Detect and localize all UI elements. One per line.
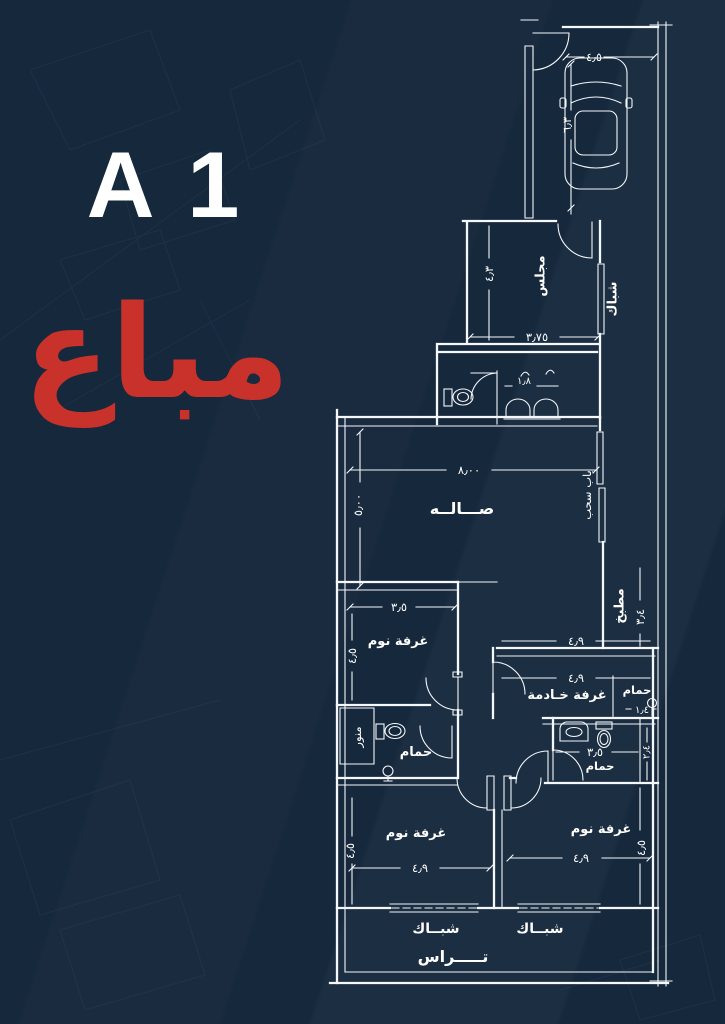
toilet-bowl-inner xyxy=(458,393,469,402)
toilet-bowl xyxy=(453,389,473,405)
dim-bath-height: ٢٫٤ xyxy=(642,745,653,759)
vanity-basin xyxy=(566,728,582,737)
sink-basin xyxy=(383,766,393,776)
car-body xyxy=(565,58,627,189)
dim-maid-width: ٤٫٩ xyxy=(568,671,584,685)
bedroom1-label: غرفة نوم xyxy=(368,634,428,649)
mid-bathroom-door-arc xyxy=(553,750,583,780)
vanity-outline xyxy=(560,722,588,741)
hall-label: صـــالــه xyxy=(430,499,495,518)
bedroom3-door-arc xyxy=(516,751,548,783)
dim-majlis-height: ٤٫٣ xyxy=(482,266,496,282)
bedroom1-door-arc xyxy=(426,672,462,715)
dim-kitchen-depth: ٣٫٤ xyxy=(633,609,647,625)
toilet-bowl-inner xyxy=(600,734,608,745)
dim-bedroom3-height: ٤٫٥ xyxy=(634,840,648,856)
sink-counter xyxy=(504,386,560,419)
left-bathroom-label: حمام xyxy=(400,745,433,760)
sliding-door-leaves xyxy=(597,432,605,542)
toilet-tank xyxy=(596,722,612,729)
left-bathroom-toilet-icon xyxy=(376,724,405,740)
car-hood-line xyxy=(571,82,621,86)
double-sink-icon xyxy=(504,370,560,419)
dim-majlis-width: ٣٫٧٥ xyxy=(526,330,548,344)
parking-left-wall xyxy=(525,46,533,218)
maid-room-label: غرفة خـادمة xyxy=(527,688,606,703)
toilet-bowl-inner xyxy=(389,727,401,736)
corridor-arch-arcs xyxy=(457,778,541,808)
light-well-label: منور xyxy=(350,726,365,748)
terrace-label: تـــــراس xyxy=(418,947,489,966)
dim-bedroom3-width: ٤٫٩ xyxy=(573,851,589,865)
toilet-tank xyxy=(444,389,452,406)
labels-layer: ٤٫٥ ٦٫٣ ٤٫٣ ٣٫٧٥ ١٫٨ ٨٫٠٠ ٥٫٠٠ ٣٫٥ ٤٫٥ ٣… xyxy=(343,50,653,966)
mid-bathroom-sink-icon xyxy=(560,722,588,741)
dim-parking-depth: ٦٫٣ xyxy=(560,117,574,133)
dim-bedroom1-height: ٤٫٥ xyxy=(345,648,359,664)
bedroom3-top-wall xyxy=(510,778,658,783)
bedroom2-label: غرفة نوم xyxy=(386,826,446,841)
kitchen-label: مطبخ xyxy=(613,588,628,623)
dim-bedroom2-height: ٤٫٥ xyxy=(343,843,357,859)
poster-page: A 1 مباع xyxy=(0,0,725,1024)
window-bottom-left-label: شبــاك xyxy=(412,921,459,937)
dim-wc-width: ١٫٨ xyxy=(517,376,532,387)
majlis-window-label: شباك xyxy=(606,282,621,317)
corridor-arch-posts xyxy=(487,776,511,810)
majlis-walls xyxy=(437,221,600,424)
dimension-lines-layer xyxy=(347,54,657,904)
majlis-door-arc xyxy=(558,222,592,258)
property-boundary xyxy=(521,20,672,986)
dim-hall-width: ٨٫٠٠ xyxy=(458,463,480,477)
sink-basin-2 xyxy=(534,399,558,417)
terrace-inner-border xyxy=(345,908,653,972)
toilet-tank xyxy=(376,724,384,739)
majlis-label: مجلس xyxy=(534,255,549,296)
mid-bathroom-label: حمام xyxy=(586,759,615,773)
dim-bedroom2-width: ٤٫٩ xyxy=(412,861,428,875)
majlis-window xyxy=(598,264,604,334)
dim-maid-bath-width: ١٫٤ xyxy=(635,705,649,716)
floor-plan: ٤٫٥ ٦٫٣ ٤٫٣ ٣٫٧٥ ١٫٨ ٨٫٠٠ ٥٫٠٠ ٣٫٥ ٤٫٥ ٣… xyxy=(0,0,725,1024)
dim-parking-width: ٤٫٥ xyxy=(586,50,602,64)
dim-bath-width: ٣٫٥ xyxy=(587,745,603,759)
dim-kitchen-width: ٤٫٩ xyxy=(568,634,584,648)
toilet-bowl xyxy=(385,724,405,739)
dim-bedroom1-width: ٣٫٥ xyxy=(391,600,407,614)
car-roof xyxy=(575,111,617,155)
car-rear-window xyxy=(573,163,619,168)
maid-bathroom-label: حمام xyxy=(623,683,652,697)
walls-layer xyxy=(330,20,672,986)
gate-door-arc xyxy=(533,33,569,70)
sink-basin-1 xyxy=(506,399,530,417)
bedroom1-top-wall-inner xyxy=(337,582,497,590)
mid-bathroom-toilet-icon xyxy=(596,722,612,748)
car-windshield xyxy=(571,97,621,103)
dim-tick-marks xyxy=(347,54,657,871)
wc-toilet-icon xyxy=(444,389,473,406)
wc-door-arc xyxy=(471,373,497,399)
window-bottom-right-label: شبــاك xyxy=(516,921,563,937)
dim-hall-height: ٥٫٠٠ xyxy=(351,494,365,516)
bedroom3-label: غرفة نوم xyxy=(571,822,631,837)
sliding-door-label: باب سحب xyxy=(580,470,594,520)
